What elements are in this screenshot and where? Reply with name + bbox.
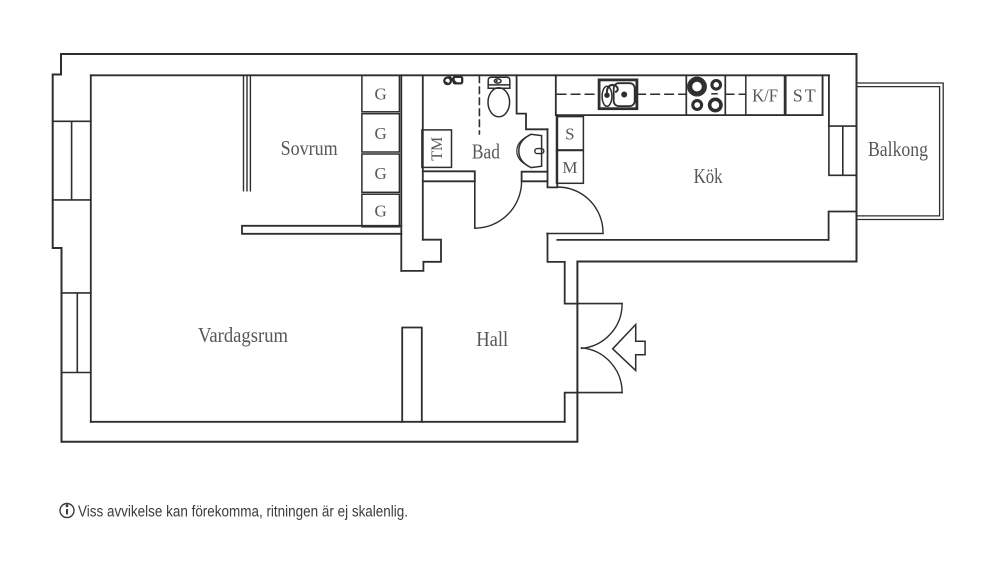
svg-text:S: S (565, 125, 574, 144)
svg-text:Sovrum: Sovrum (281, 136, 338, 160)
svg-text:Kök: Kök (694, 164, 723, 188)
svg-text:ST: ST (793, 86, 816, 106)
svg-text:Balkong: Balkong (868, 137, 928, 161)
svg-text:Vardagsrum: Vardagsrum (198, 323, 288, 347)
svg-text:G: G (374, 202, 386, 221)
svg-text:K/F: K/F (752, 86, 778, 106)
svg-text:G: G (374, 164, 386, 183)
svg-text:G: G (374, 124, 386, 143)
svg-text:M: M (562, 158, 577, 177)
svg-text:Bad: Bad (472, 139, 500, 163)
svg-text:TM: TM (429, 137, 446, 161)
svg-text:Viss avvikelse kan förekomma,: Viss avvikelse kan förekomma, ritningen … (78, 504, 408, 521)
svg-text:G: G (374, 85, 386, 104)
svg-text:Hall: Hall (476, 327, 508, 351)
